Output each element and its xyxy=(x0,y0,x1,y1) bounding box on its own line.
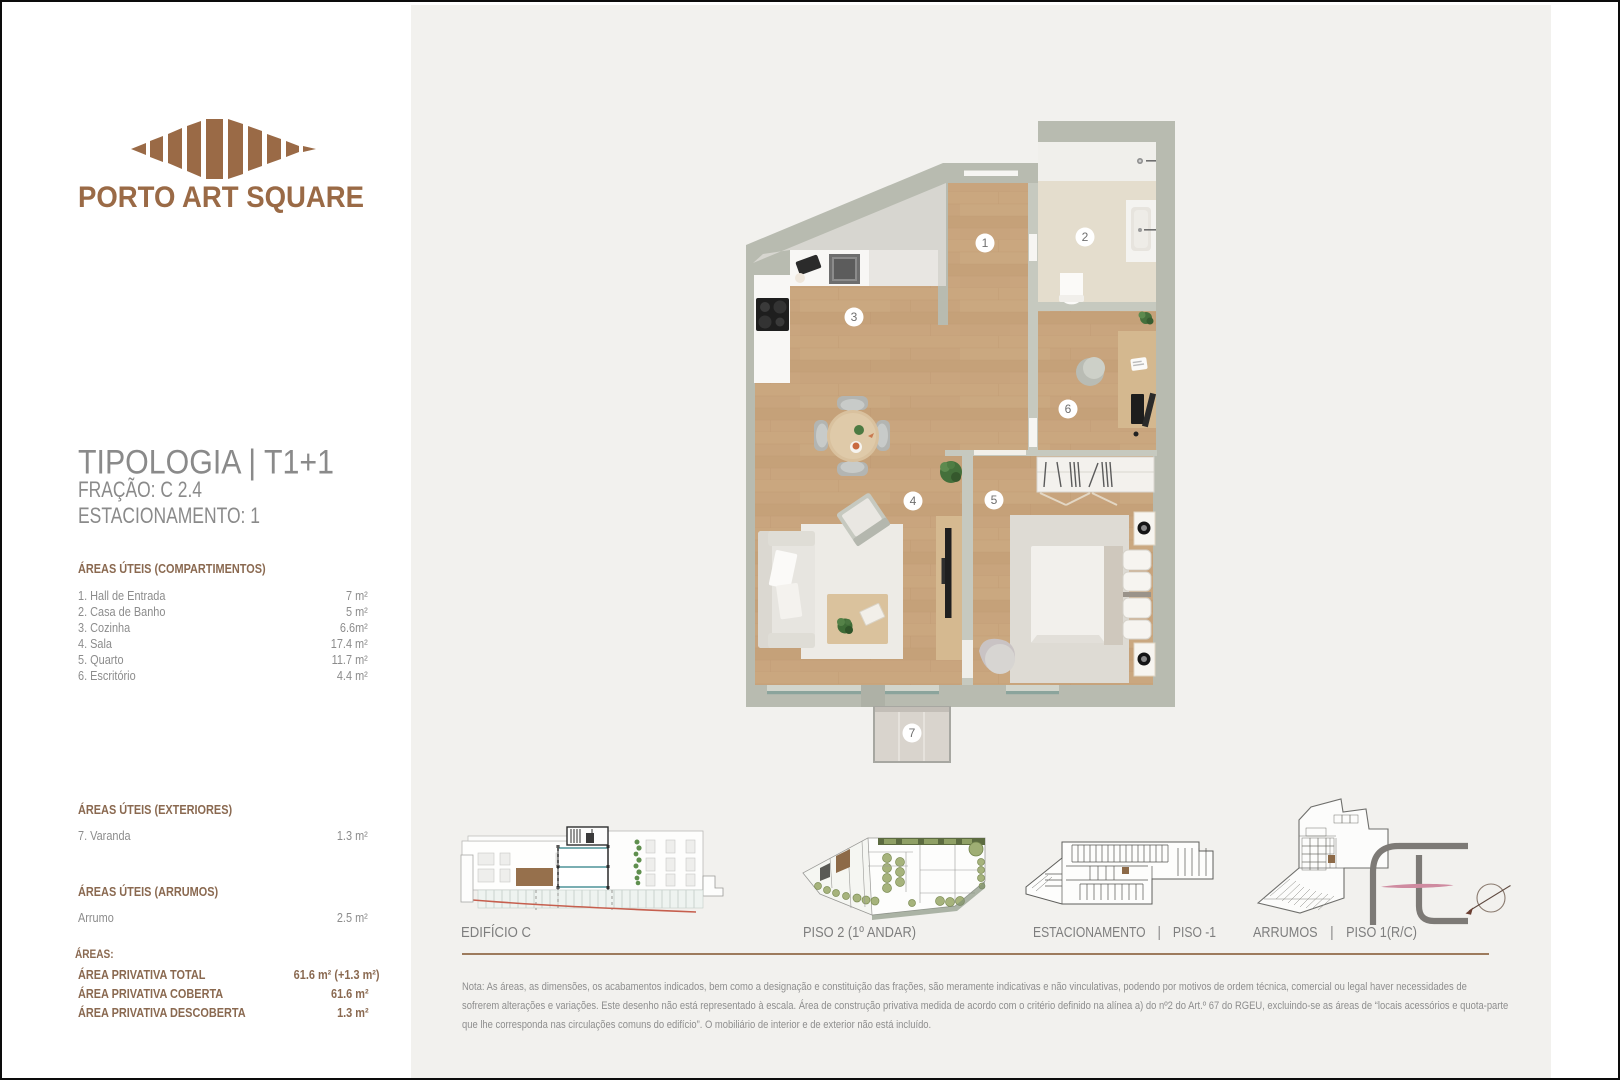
svg-text:2: 2 xyxy=(1082,230,1089,244)
svg-text:1: 1 xyxy=(982,236,989,250)
svg-text:7: 7 xyxy=(909,726,916,740)
svg-text:3: 3 xyxy=(851,310,858,324)
svg-text:PISO 2 (1º ANDAR): PISO 2 (1º ANDAR) xyxy=(803,924,916,941)
svg-text:ESTACIONAMENTO | PISO -1: ESTACIONAMENTO | PISO -1 xyxy=(1033,924,1216,941)
svg-text:PORTO ART SQUARE: PORTO ART SQUARE xyxy=(78,181,364,214)
svg-text:5: 5 xyxy=(991,493,998,507)
svg-text:ARRUMOS | PISO 1(R/C): ARRUMOS | PISO 1(R/C) xyxy=(1253,924,1417,941)
svg-text:6: 6 xyxy=(1065,402,1072,416)
svg-text:EDIFÍCIO C: EDIFÍCIO C xyxy=(461,924,531,941)
svg-text:4: 4 xyxy=(910,494,917,508)
